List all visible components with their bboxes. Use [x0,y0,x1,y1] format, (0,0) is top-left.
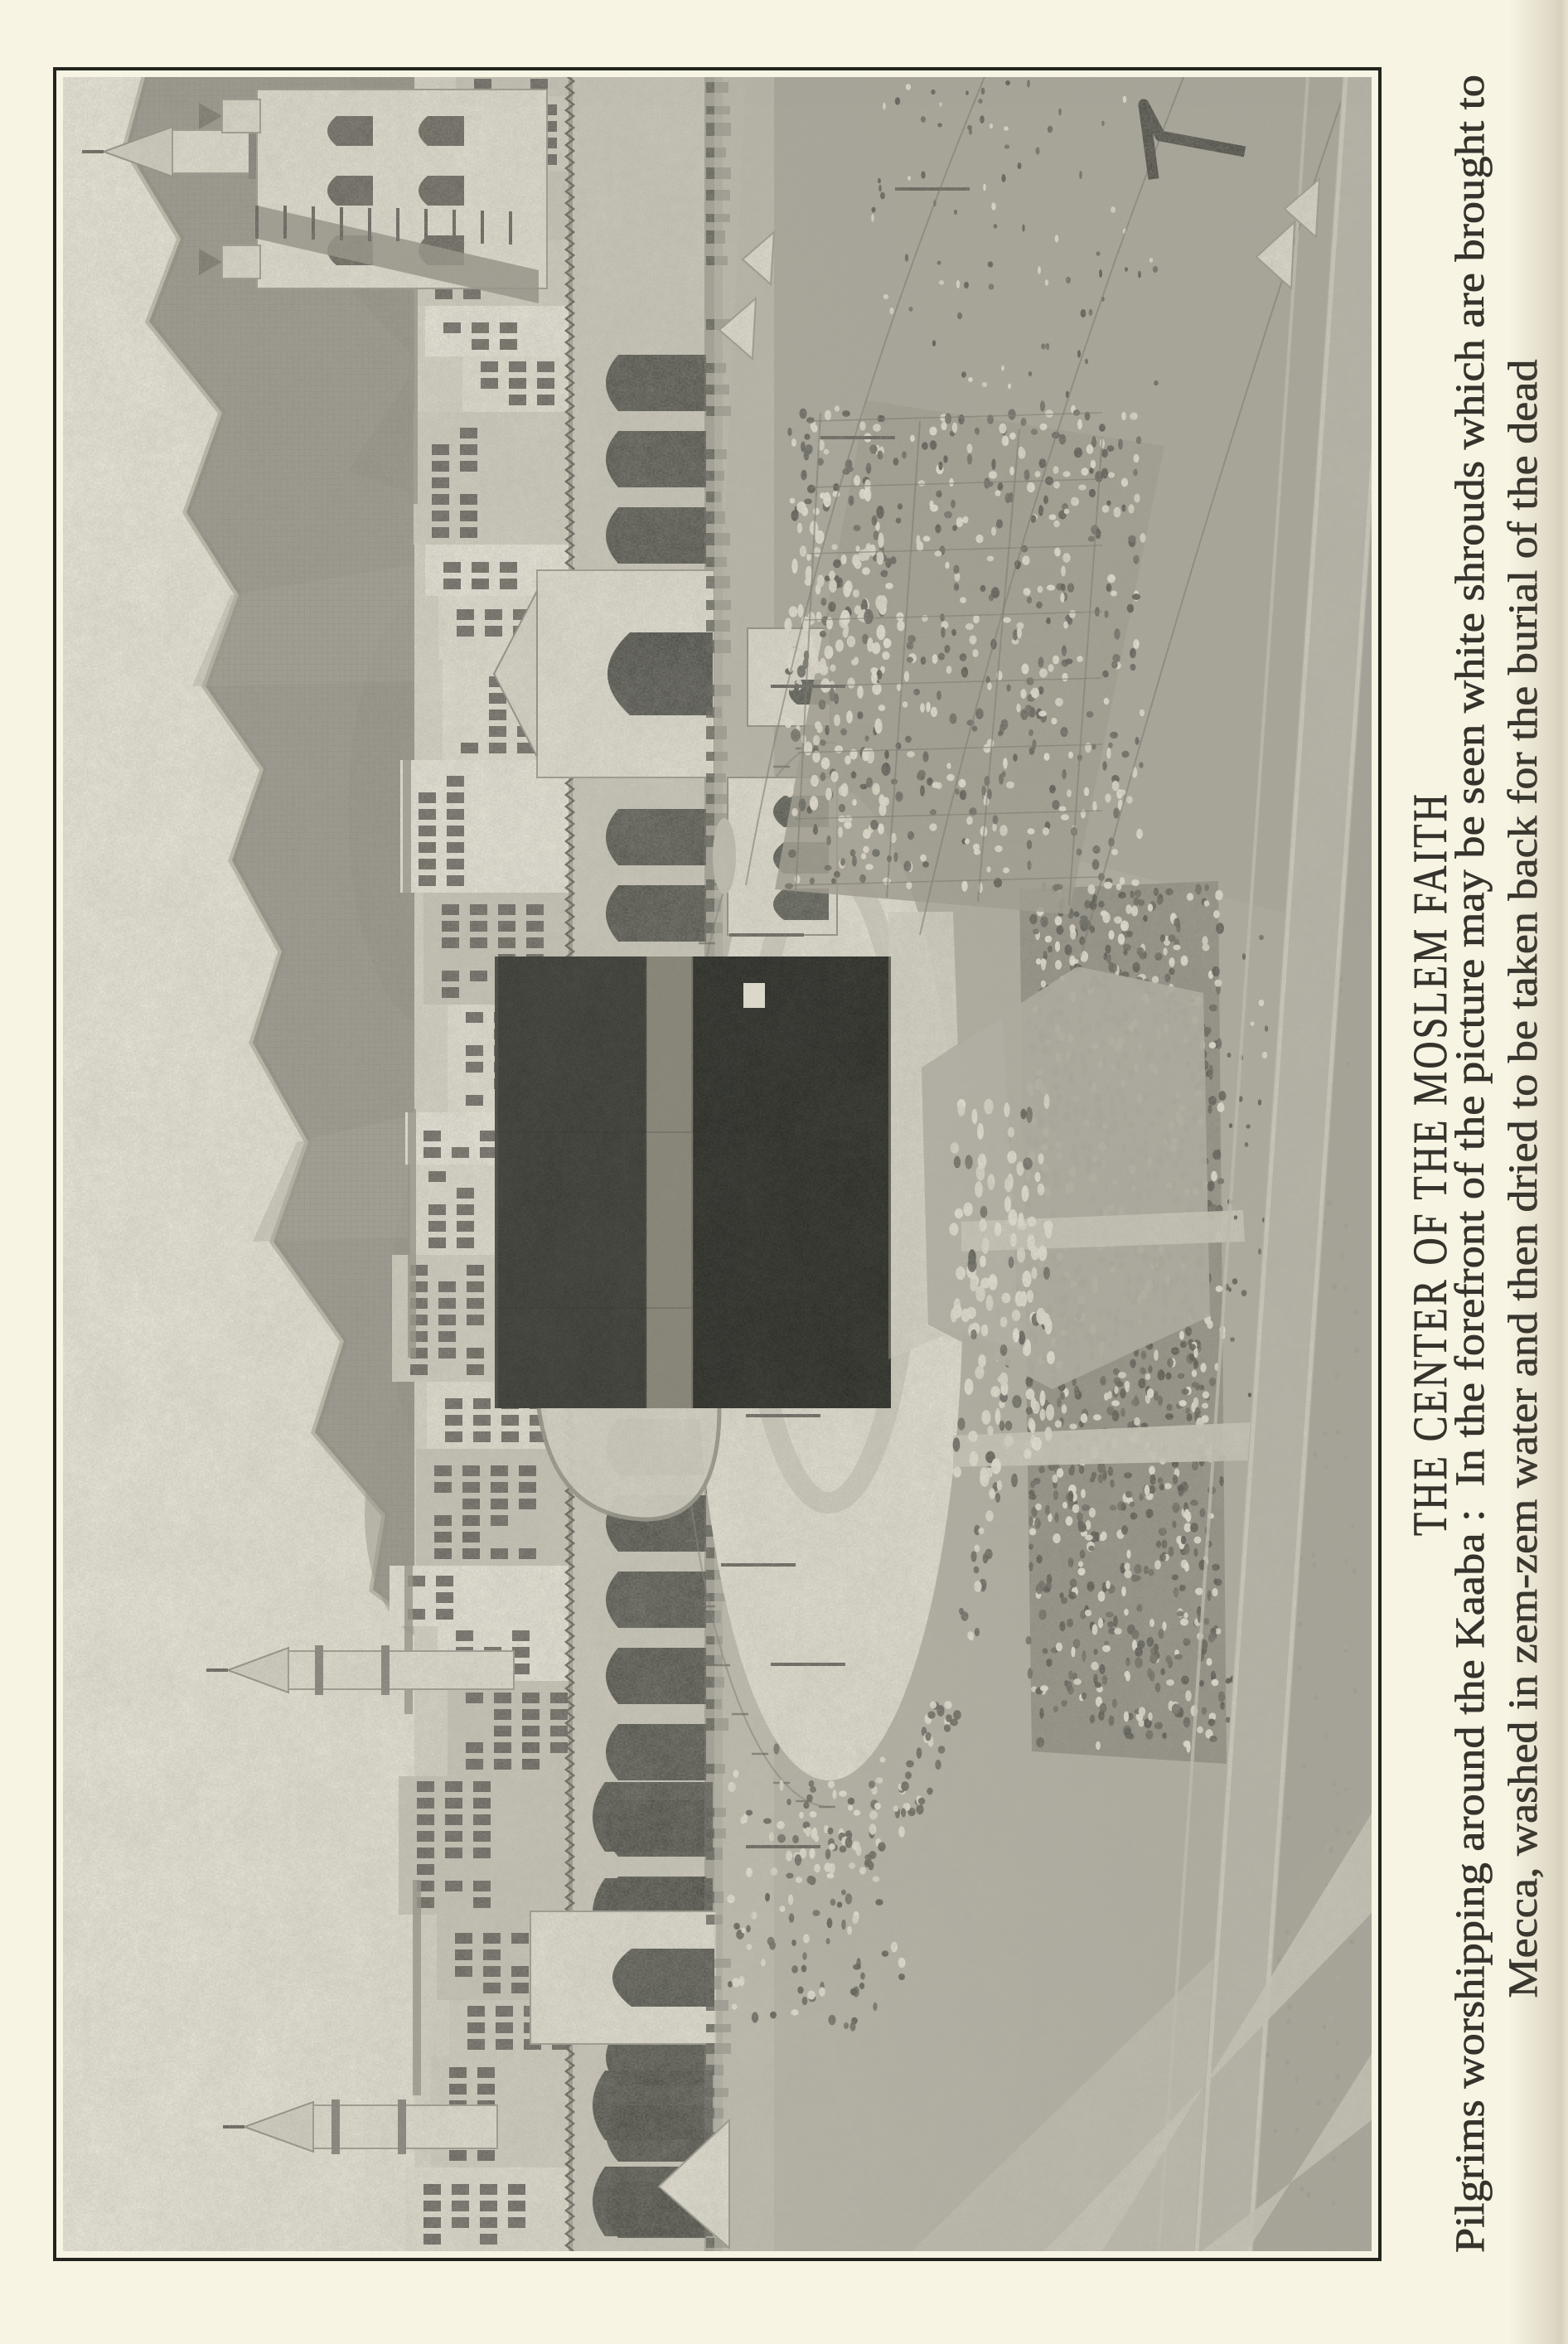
svg-text:Mecca, washed in zem-zem water: Mecca, washed in zem-zem water and then … [1499,360,1546,1998]
svg-text:Pilgrims worshipping around th: Pilgrims worshipping around the Kaaba : … [1446,75,1493,2253]
